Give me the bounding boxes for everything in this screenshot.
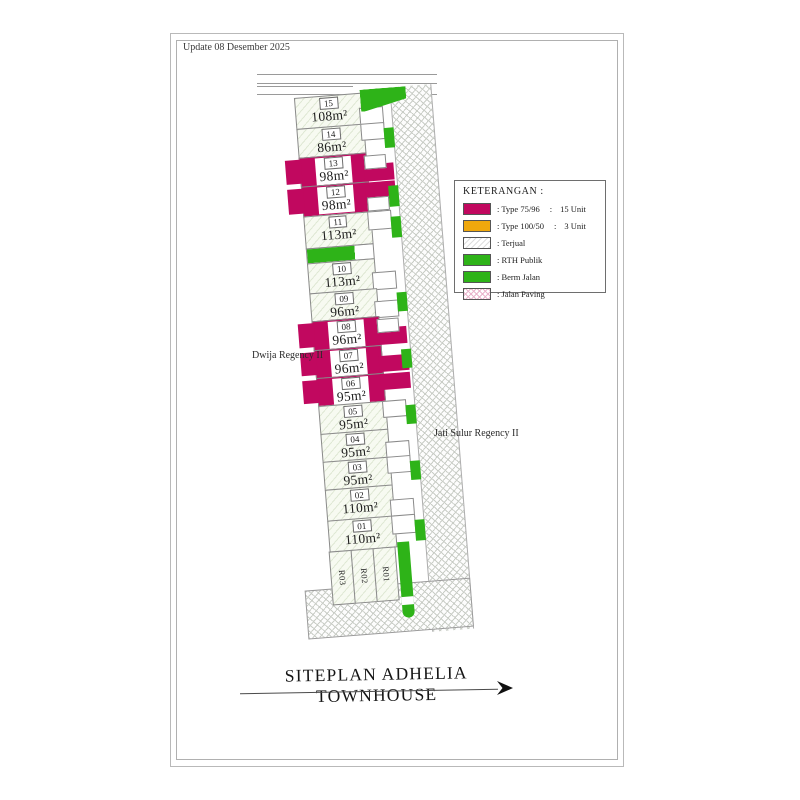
legend-swatch-green bbox=[463, 271, 491, 283]
lot-number: R02 bbox=[359, 568, 370, 584]
legend-item: : RTH Publik bbox=[463, 252, 597, 267]
road-line bbox=[257, 74, 437, 75]
page-title: SITEPLAN ADHELIA TOWNHOUSE bbox=[285, 662, 468, 706]
lot-area: 110m² bbox=[342, 500, 379, 517]
berm-green-segment bbox=[410, 460, 421, 480]
berm-green-segment bbox=[384, 127, 396, 147]
lot-labels: 1486m² bbox=[316, 127, 347, 155]
berm-green-segment bbox=[414, 519, 426, 541]
legend-item: : Type 100/50:3 Unit bbox=[463, 218, 597, 233]
berm-green-segment bbox=[401, 348, 412, 368]
lot-area: 86m² bbox=[317, 139, 347, 155]
berm-green-segment bbox=[396, 292, 407, 312]
legend-rows: : Type 75/96:15 Unit: Type 100/50:3 Unit… bbox=[463, 201, 597, 301]
legend-swatch-green bbox=[463, 254, 491, 266]
road-line bbox=[257, 83, 437, 84]
berm-green-segment bbox=[388, 185, 400, 206]
carport-box bbox=[386, 455, 411, 474]
area-label-right: Jati Sulur Regency II bbox=[434, 428, 519, 439]
house-footprint-left bbox=[302, 380, 320, 404]
lot-labels: 1398m² bbox=[315, 156, 352, 186]
lot-labels: 0495m² bbox=[340, 432, 371, 460]
lot-row-R01: R01 bbox=[372, 546, 399, 602]
carport-box bbox=[367, 210, 392, 231]
legend-label: : Jalan Paving bbox=[497, 289, 545, 299]
house-footprint-left bbox=[285, 160, 303, 185]
lot-area: 98m² bbox=[321, 197, 351, 213]
lot-area: 113m² bbox=[324, 273, 361, 290]
lot-number: R01 bbox=[380, 566, 391, 582]
legend-title: KETERANGAN : bbox=[463, 186, 597, 197]
berm-gap bbox=[401, 596, 414, 605]
lot-labels: 0796m² bbox=[330, 348, 367, 378]
legend-label: : Type 100/50 bbox=[497, 221, 544, 231]
lot-labels: 01110m² bbox=[343, 519, 381, 548]
lot-labels: 0395m² bbox=[342, 460, 373, 488]
legend-unit-count: 15 Unit bbox=[560, 204, 586, 214]
update-date-label: Update 08 Desember 2025 bbox=[183, 42, 290, 53]
legend-unit-count: 3 Unit bbox=[564, 221, 586, 231]
legend-swatch-magenta bbox=[463, 203, 491, 215]
legend-label: : Terjual bbox=[497, 238, 525, 248]
lot-labels: 02110m² bbox=[341, 488, 379, 517]
legend-swatch-hatch bbox=[463, 237, 491, 249]
legend-swatch-paving bbox=[463, 288, 491, 300]
legend-item: : Jalan Paving bbox=[463, 286, 597, 301]
house-footprint-left bbox=[298, 323, 316, 348]
carport-box bbox=[382, 399, 407, 418]
legend-label: : Berm Jalan bbox=[497, 272, 540, 282]
legend-box: KETERANGAN : : Type 75/96:15 Unit: Type … bbox=[454, 180, 606, 293]
lot-area: 110m² bbox=[344, 531, 381, 548]
lot-area: 98m² bbox=[319, 168, 349, 184]
lot-number: R03 bbox=[337, 569, 348, 585]
carport-box bbox=[360, 122, 385, 141]
arrow-icon bbox=[496, 680, 514, 701]
lot-area: 113m² bbox=[320, 227, 357, 244]
lot-area: 96m² bbox=[332, 331, 362, 347]
legend-swatch-orange bbox=[463, 220, 491, 232]
berm-green-segment bbox=[391, 216, 403, 238]
lot-labels: 0896m² bbox=[328, 319, 365, 349]
legend-separator: : bbox=[550, 204, 552, 214]
title-block: SITEPLAN ADHELIA TOWNHOUSE bbox=[234, 662, 520, 709]
carport-box bbox=[377, 317, 400, 333]
carport-box bbox=[364, 154, 387, 170]
lot-labels: 1298m² bbox=[317, 185, 354, 215]
berm-green-segment bbox=[405, 404, 416, 424]
house-footprint-left bbox=[287, 189, 305, 215]
lot-area: 108m² bbox=[311, 108, 348, 125]
lot-labels: 0695m² bbox=[332, 376, 369, 406]
legend-item: : Berm Jalan bbox=[463, 269, 597, 284]
lot-labels: 0595m² bbox=[338, 404, 369, 432]
house-footprint-right bbox=[380, 372, 411, 390]
legend-label: : Type 75/96 bbox=[497, 204, 540, 214]
legend-item: : Type 75/96:15 Unit bbox=[463, 201, 597, 216]
legend-label: : RTH Publik bbox=[497, 255, 542, 265]
legend-separator: : bbox=[554, 221, 556, 231]
lot-labels: 15108m² bbox=[310, 96, 348, 125]
lot-labels: 11113m² bbox=[319, 215, 357, 244]
area-label-left: Dwija Regency II bbox=[252, 350, 323, 361]
carport-box bbox=[391, 514, 416, 535]
road-line bbox=[257, 86, 353, 87]
r-lots-row: R03R02R01 bbox=[330, 546, 400, 603]
lot-labels: 10113m² bbox=[323, 261, 361, 290]
legend-item: : Terjual bbox=[463, 235, 597, 250]
lot-labels: 0996m² bbox=[329, 292, 360, 320]
